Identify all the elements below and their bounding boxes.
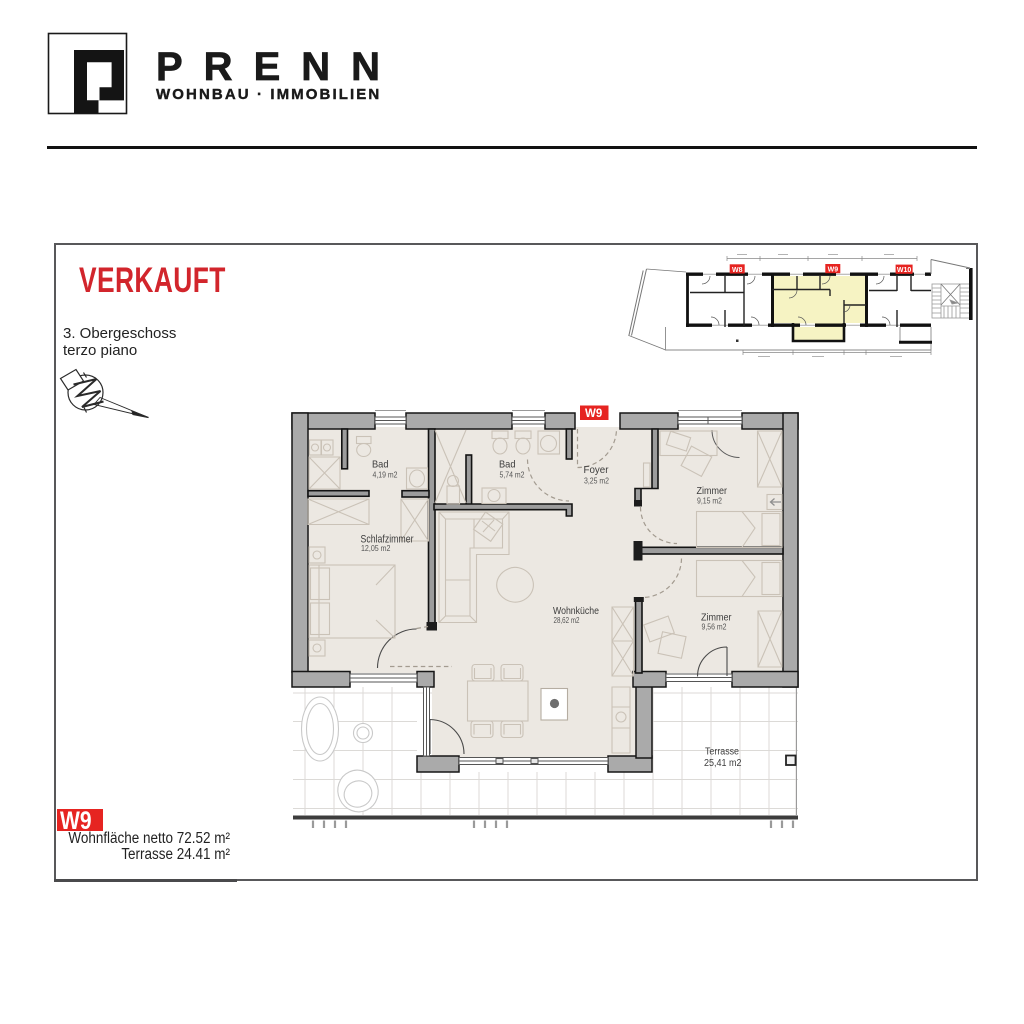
svg-text:W9: W9	[585, 408, 602, 420]
svg-text:W8: W8	[732, 267, 743, 274]
svg-text:5,74 m2: 5,74 m2	[500, 470, 525, 480]
svg-text:9,15 m2: 9,15 m2	[697, 496, 722, 506]
svg-text:12,05 m2: 12,05 m2	[361, 543, 391, 553]
svg-text:Foyer: Foyer	[584, 464, 609, 476]
svg-text:Terrasse: Terrasse	[705, 747, 739, 758]
svg-text:28,62 m2: 28,62 m2	[554, 615, 580, 625]
svg-text:W10: W10	[897, 267, 912, 274]
svg-text:25,41 m2: 25,41 m2	[704, 758, 742, 769]
svg-text:9,56 m2: 9,56 m2	[702, 622, 727, 632]
svg-text:3,25 m2: 3,25 m2	[584, 476, 609, 486]
svg-text:W9: W9	[828, 267, 839, 274]
svg-text:4,19 m2: 4,19 m2	[373, 470, 398, 480]
